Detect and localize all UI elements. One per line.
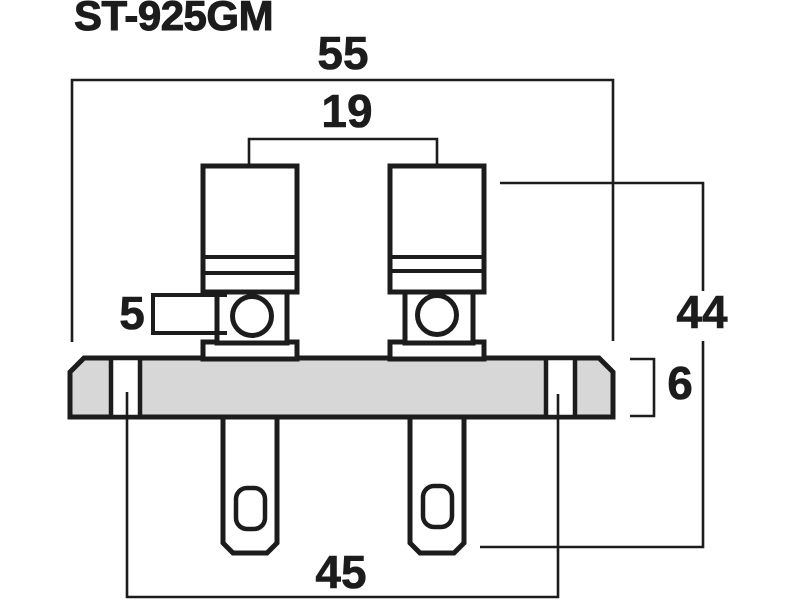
- left-mounting-slot: [111, 358, 140, 417]
- right-lug-hole: [423, 486, 452, 527]
- dim-55-label: 55: [317, 30, 368, 76]
- right-mounting-slot: [546, 358, 575, 417]
- dim-6-bracket: [630, 359, 654, 416]
- dim-45-label: 45: [315, 549, 366, 595]
- left-post-wire-hole: [233, 297, 272, 336]
- dim-6-label: 6: [667, 360, 693, 406]
- mounting-plate: [70, 358, 613, 417]
- right-post-cap: [390, 166, 484, 292]
- left-solder-lug: [223, 417, 277, 553]
- right-post-wire-hole: [418, 296, 457, 335]
- dim-19-label: 19: [321, 88, 372, 134]
- dim-19-line: [249, 139, 437, 165]
- technical-drawing-page: ST-925GM 55 19 5 44 6 45: [0, 0, 800, 600]
- left-lug-hole: [236, 488, 265, 529]
- dim-5-label: 5: [119, 290, 145, 336]
- part-number-title: ST-925GM: [74, 0, 273, 37]
- dim-44-label: 44: [676, 289, 727, 335]
